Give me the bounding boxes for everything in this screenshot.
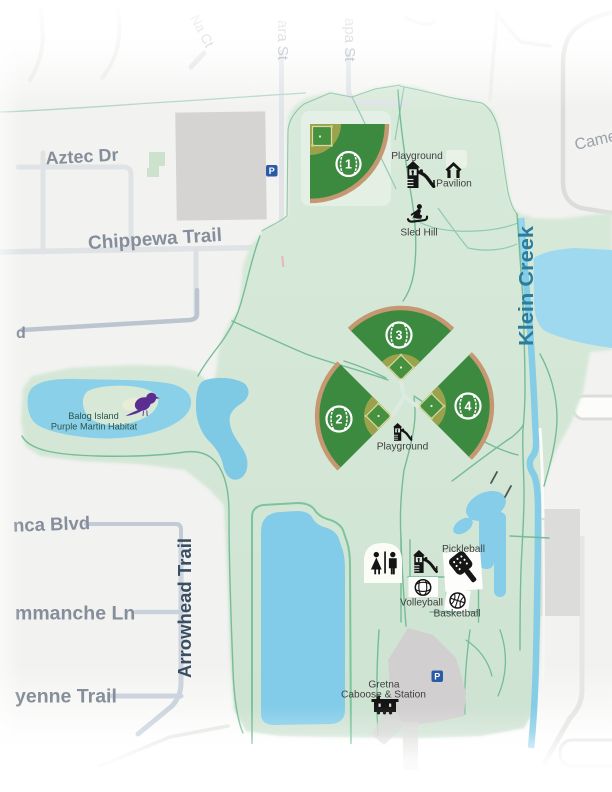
svg-text:4: 4: [465, 399, 472, 413]
svg-text:P: P: [434, 672, 440, 682]
svg-text:Purple Martin Habitat: Purple Martin Habitat: [51, 422, 138, 432]
svg-text:yenne Trail: yenne Trail: [15, 686, 117, 708]
svg-text:Pickleball: Pickleball: [442, 544, 485, 555]
svg-text:Caboose & Station: Caboose & Station: [341, 690, 426, 701]
svg-text:mmanche Ln: mmanche Ln: [15, 603, 135, 625]
svg-text:Balog Island: Balog Island: [68, 411, 119, 421]
svg-text:Arrowhead Trail: Arrowhead Trail: [174, 538, 195, 678]
svg-text:Klein Creek: Klein Creek: [516, 225, 538, 346]
svg-text:Aztec Dr: Aztec Dr: [45, 145, 119, 169]
svg-text:3: 3: [396, 328, 403, 342]
svg-text:Playground: Playground: [391, 151, 443, 162]
svg-text:1: 1: [345, 157, 352, 171]
svg-text:P: P: [269, 166, 275, 176]
svg-text:Playground: Playground: [377, 442, 429, 453]
svg-text:Pavilion: Pavilion: [436, 179, 472, 190]
svg-text:2: 2: [336, 412, 343, 426]
svg-text:nca Blvd: nca Blvd: [13, 512, 91, 536]
svg-text:Sled Hill: Sled Hill: [400, 228, 437, 239]
svg-text:Basketball: Basketball: [433, 609, 480, 620]
svg-text:Volleyball: Volleyball: [400, 598, 443, 609]
